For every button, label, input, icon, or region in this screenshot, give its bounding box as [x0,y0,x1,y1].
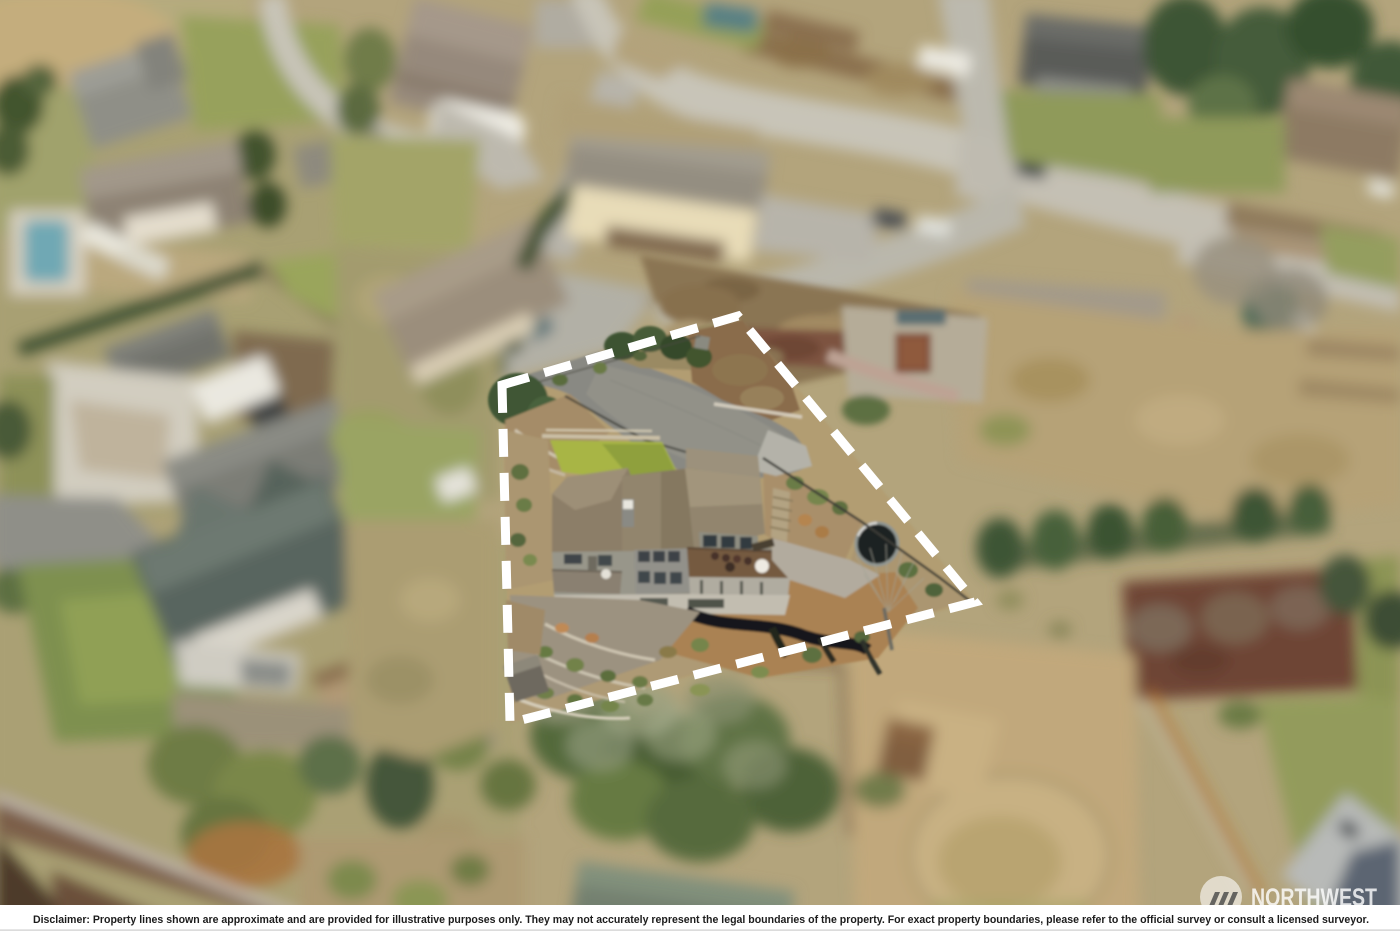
svg-text:Disclaimer: Property lines sho: Disclaimer: Property lines shown are app… [33,914,1369,926]
